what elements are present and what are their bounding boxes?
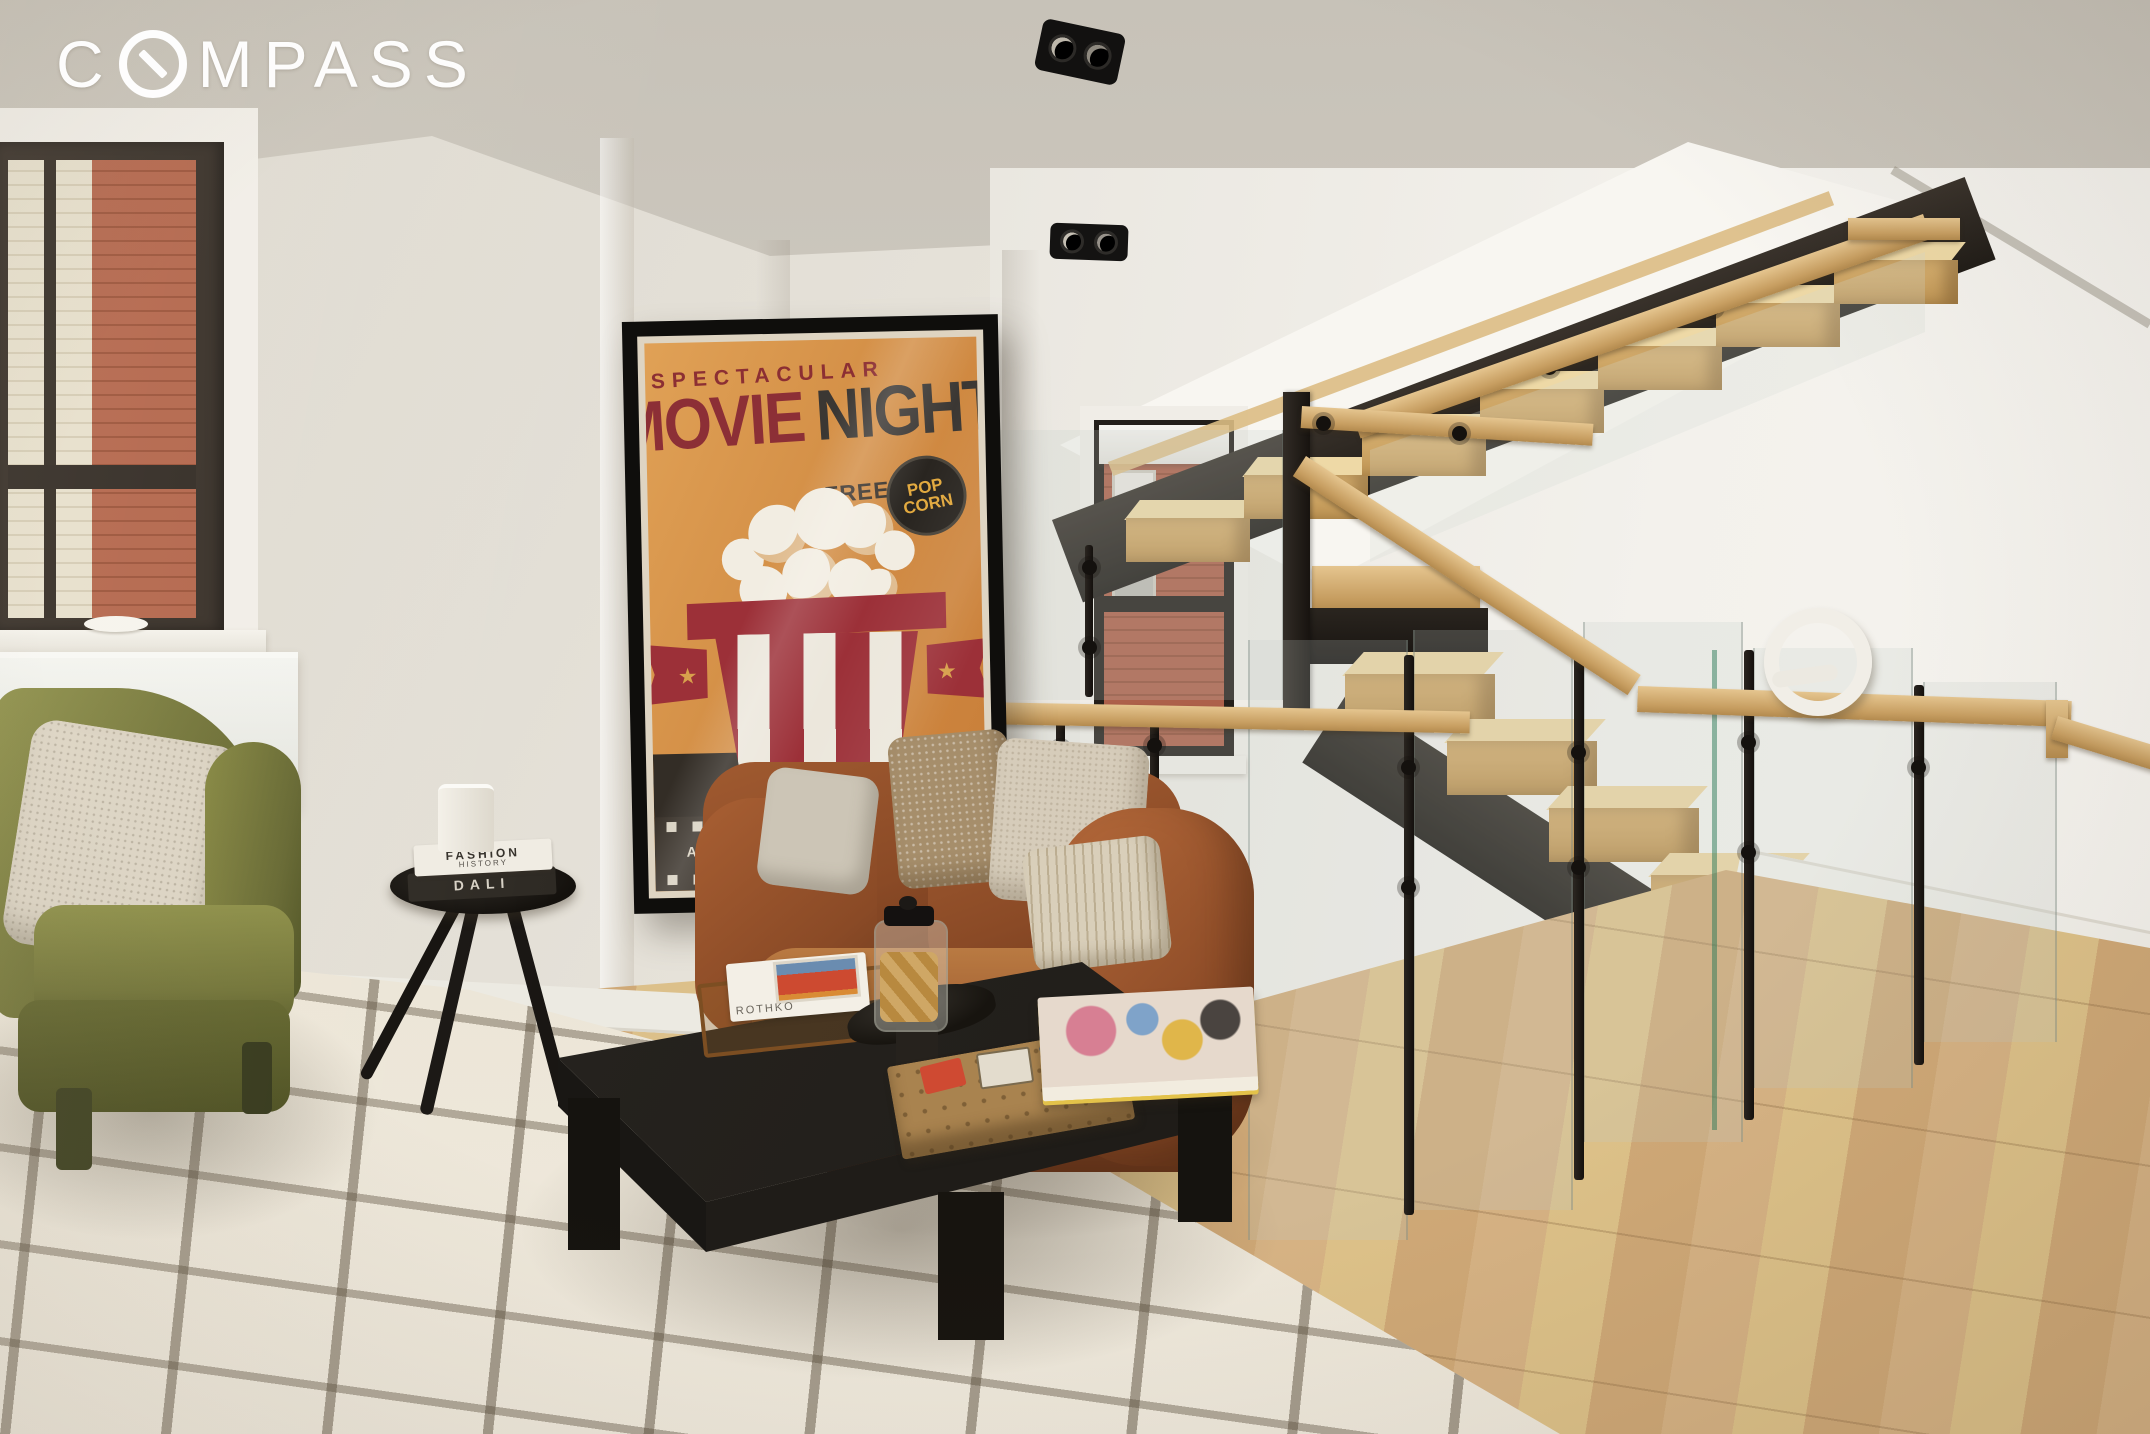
glass-green-edge — [1712, 650, 1717, 1130]
rail-bolt — [1316, 416, 1331, 431]
sill-plate — [84, 616, 148, 632]
spot-lamp-icon — [1060, 229, 1085, 254]
compass-logo-letter-c: C — [56, 26, 115, 102]
spiral-sculpture — [1764, 608, 1872, 716]
compass-logo-letters: MPASS — [198, 26, 479, 102]
left-window-view-red-brick — [92, 160, 196, 618]
collage-art-book — [1037, 986, 1258, 1101]
glass-standoff-bolt — [1401, 880, 1416, 895]
candle — [438, 784, 494, 852]
book-dali-spine: DALI — [453, 875, 510, 894]
glass-standoff-bolt — [1571, 860, 1586, 875]
left-window-muntin — [8, 465, 196, 489]
rail-bolt — [1452, 426, 1467, 441]
sofa-pillow-striped — [1021, 834, 1173, 974]
spot-lamp-icon — [1046, 32, 1079, 65]
glass-standoff-bolt — [1741, 735, 1756, 750]
stair-glass-panel — [1923, 682, 2057, 1042]
glass-jar-wood-blocks — [880, 952, 938, 1022]
book-fashion-spine-line2: HISTORY — [458, 858, 508, 869]
left-window-mullion — [44, 160, 56, 618]
glass-hardware-post — [1744, 650, 1754, 1120]
book-rothko-cover-art — [776, 958, 857, 1001]
glass-standoff-bolt — [1082, 640, 1097, 655]
recessed-light-fixture — [1049, 223, 1128, 262]
glass-standoff-bolt — [1082, 560, 1097, 575]
landing-guard-glass — [962, 430, 1284, 700]
glass-standoff-bolt — [1401, 760, 1416, 775]
stair-handrail-top-return — [1848, 218, 1960, 240]
spot-lamp-icon — [1094, 230, 1119, 255]
glass-hardware-post — [1574, 640, 1584, 1180]
glass-hardware-post — [1914, 685, 1924, 1065]
book-rothko-spine: ROTHKO — [735, 1000, 795, 1017]
glass-standoff-bolt — [1911, 760, 1926, 775]
armchair-leg — [242, 1042, 272, 1114]
monogram-box-sticker — [976, 1046, 1034, 1089]
coffee-table-leg — [568, 1098, 620, 1250]
glass-standoff-bolt — [1741, 845, 1756, 860]
listing-photo-living-room: SPECTACULAR MOVIE NIGHT! FREE POP CORN — [0, 0, 2150, 1434]
compass-logo-watermark: C MPASS — [56, 26, 479, 102]
armchair-leg — [56, 1088, 92, 1170]
compass-logo-o-needle-icon — [119, 30, 187, 98]
spot-lamp-icon — [1081, 39, 1114, 72]
glass-jar-lid-knob — [899, 896, 917, 910]
coffee-table-leg — [938, 1192, 1004, 1340]
glass-hardware-post — [1404, 655, 1414, 1215]
coffee-table-leg — [1178, 1082, 1232, 1222]
book-rothko: ROTHKO — [726, 952, 871, 1022]
glass-standoff-bolt — [1571, 745, 1586, 760]
sofa-pillow-pale — [755, 766, 881, 897]
glass-standoff-bolt — [1147, 738, 1162, 753]
